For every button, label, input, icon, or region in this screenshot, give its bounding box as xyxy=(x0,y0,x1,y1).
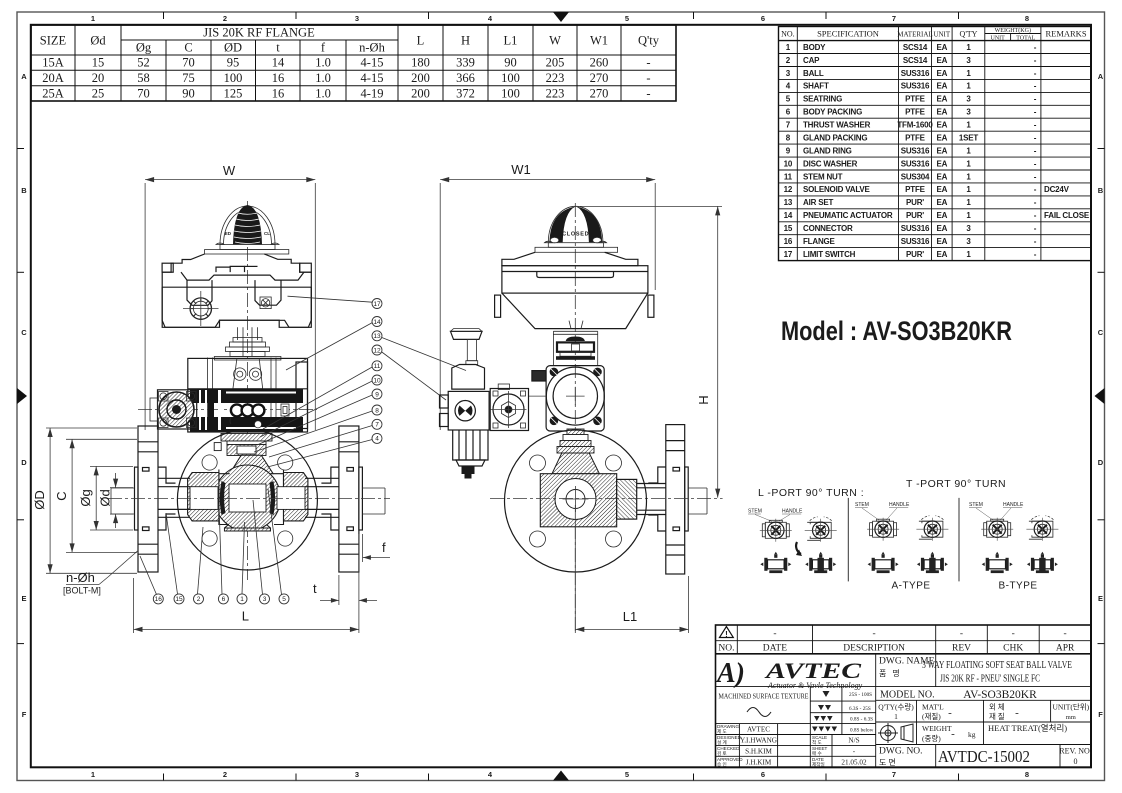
svg-text:SUS316: SUS316 xyxy=(901,146,930,155)
svg-text:MODEL NO.: MODEL NO. xyxy=(880,690,935,701)
svg-text:6.3S - 25S: 6.3S - 25S xyxy=(849,706,871,712)
svg-text:BALL: BALL xyxy=(803,69,824,78)
svg-text:EA: EA xyxy=(936,121,947,130)
svg-text:SOLENOID VALVE: SOLENOID VALVE xyxy=(803,185,871,194)
svg-text:MATERIAL: MATERIAL xyxy=(897,31,932,39)
svg-text:SHAFT: SHAFT xyxy=(803,82,829,91)
svg-text:THRUST WASHER: THRUST WASHER xyxy=(803,121,871,130)
svg-text:t: t xyxy=(276,41,280,55)
svg-text:-: - xyxy=(1034,237,1037,246)
svg-text:AVTDC-15002: AVTDC-15002 xyxy=(938,747,1030,766)
svg-text:외 체: 외 체 xyxy=(989,702,1005,712)
svg-text:PTFE: PTFE xyxy=(905,134,926,143)
svg-text:JIS 20K RF - PNEU' SINGLE FC: JIS 20K RF - PNEU' SINGLE FC xyxy=(940,673,1040,685)
svg-text:5: 5 xyxy=(786,95,791,104)
svg-text:52: 52 xyxy=(137,56,150,70)
svg-text:1: 1 xyxy=(966,82,971,91)
svg-text:n-Øh: n-Øh xyxy=(66,570,95,585)
svg-text:EA: EA xyxy=(936,69,947,78)
svg-text:PTFE: PTFE xyxy=(905,108,926,117)
svg-text:EA: EA xyxy=(936,198,947,207)
svg-text:200: 200 xyxy=(411,86,430,100)
svg-text:25A: 25A xyxy=(42,86,64,100)
svg-text:5: 5 xyxy=(282,596,286,603)
svg-text:설 계: 설 계 xyxy=(717,739,727,746)
svg-text:E: E xyxy=(1098,594,1103,603)
svg-text:SEATRING: SEATRING xyxy=(803,95,842,104)
svg-text:품 명: 품 명 xyxy=(879,668,900,678)
svg-text:-: - xyxy=(773,629,776,639)
svg-text:AV-SO3B20KR: AV-SO3B20KR xyxy=(963,689,1037,701)
svg-text:[BOLT-M]: [BOLT-M] xyxy=(63,586,101,596)
svg-text:-: - xyxy=(1034,185,1037,194)
svg-text:5: 5 xyxy=(625,770,629,779)
svg-text:SUS316: SUS316 xyxy=(901,159,930,168)
svg-text:E: E xyxy=(21,594,26,603)
svg-text:3: 3 xyxy=(966,224,971,233)
svg-text:STEM: STEM xyxy=(969,502,983,508)
svg-text:70: 70 xyxy=(182,56,195,70)
svg-text:A): A) xyxy=(715,658,745,689)
svg-text:EA: EA xyxy=(936,237,947,246)
svg-text:0.8S - 6.3S: 0.8S - 6.3S xyxy=(850,717,873,723)
svg-text:n-Øh: n-Øh xyxy=(359,41,385,55)
svg-text:EA: EA xyxy=(936,224,947,233)
svg-text:-: - xyxy=(1034,250,1037,259)
svg-text:-: - xyxy=(948,707,952,719)
svg-text:SUS316: SUS316 xyxy=(901,224,930,233)
svg-text:1: 1 xyxy=(966,185,971,194)
svg-text:90: 90 xyxy=(182,86,195,100)
svg-text:8: 8 xyxy=(375,407,379,414)
svg-text:1: 1 xyxy=(966,159,971,168)
svg-text:L1: L1 xyxy=(504,34,518,48)
svg-text:TFM-1600: TFM-1600 xyxy=(897,121,933,130)
svg-text:REV. NO.: REV. NO. xyxy=(1059,747,1092,756)
svg-text:STEM: STEM xyxy=(855,502,869,508)
svg-text:Q'TY(수량): Q'TY(수량) xyxy=(878,703,914,712)
svg-text:REV: REV xyxy=(952,644,971,654)
svg-text:12: 12 xyxy=(373,347,381,354)
svg-text:3: 3 xyxy=(966,237,971,246)
svg-text:4: 4 xyxy=(375,436,379,443)
svg-text:-: - xyxy=(1034,172,1037,181)
svg-text:EA: EA xyxy=(936,185,947,194)
svg-text:BODY PACKING: BODY PACKING xyxy=(803,108,862,117)
svg-text:6: 6 xyxy=(222,596,226,603)
svg-text:223: 223 xyxy=(546,86,565,100)
svg-text:2: 2 xyxy=(223,14,227,23)
svg-text:Ød: Ød xyxy=(90,34,106,48)
svg-text:260: 260 xyxy=(590,56,609,70)
svg-text:J.H.KIM: J.H.KIM xyxy=(746,759,772,767)
svg-text:4: 4 xyxy=(488,14,493,23)
svg-text:HEAT TREAT(열처리): HEAT TREAT(열처리) xyxy=(988,723,1067,733)
svg-text:Ød: Ød xyxy=(98,489,113,506)
svg-text:FLANGE: FLANGE xyxy=(803,237,836,246)
svg-text:HANDLE: HANDLE xyxy=(889,502,910,508)
svg-text:(재질): (재질) xyxy=(922,712,941,721)
svg-text:100: 100 xyxy=(224,71,243,85)
svg-text:W1: W1 xyxy=(511,162,531,177)
svg-text:재 질: 재 질 xyxy=(989,712,1005,721)
svg-text:EA: EA xyxy=(936,146,947,155)
svg-text:10: 10 xyxy=(373,377,381,384)
svg-text:3 WAY FLOATING SOFT SEAT BALL: 3 WAY FLOATING SOFT SEAT BALL VALVE xyxy=(922,659,1072,671)
svg-text:15: 15 xyxy=(92,56,105,70)
svg-text:Actuator & Vavle Technology: Actuator & Vavle Technology xyxy=(767,681,863,690)
svg-text:CONNECTOR: CONNECTOR xyxy=(803,224,853,233)
svg-text:15: 15 xyxy=(175,596,183,603)
svg-text:25: 25 xyxy=(92,86,105,100)
svg-text:6: 6 xyxy=(761,14,765,23)
svg-text:EA: EA xyxy=(936,108,947,117)
svg-text:PUR': PUR' xyxy=(906,211,924,220)
svg-text:1.0: 1.0 xyxy=(315,56,331,70)
svg-text:9: 9 xyxy=(786,146,791,155)
svg-text:FAIL CLOSE: FAIL CLOSE xyxy=(1044,211,1090,220)
svg-text:200: 200 xyxy=(411,71,430,85)
svg-text:6: 6 xyxy=(761,770,765,779)
svg-text:Q'ty: Q'ty xyxy=(638,34,660,48)
svg-text:SUS304: SUS304 xyxy=(901,172,930,181)
svg-text:20: 20 xyxy=(92,71,105,85)
svg-text:1: 1 xyxy=(966,146,971,155)
svg-text:3: 3 xyxy=(355,14,359,23)
svg-text:CLOSED: CLOSED xyxy=(562,232,589,238)
svg-text:0.8S below: 0.8S below xyxy=(850,728,874,734)
svg-text:DWG. NO.: DWG. NO. xyxy=(879,747,923,757)
svg-text:제작일: 제작일 xyxy=(812,761,825,768)
svg-text:W1: W1 xyxy=(590,34,608,48)
svg-text:검 토: 검 토 xyxy=(717,750,727,756)
svg-text:-: - xyxy=(1015,707,1019,719)
svg-text:AVTEC: AVTEC xyxy=(747,726,770,734)
svg-text:339: 339 xyxy=(456,56,475,70)
svg-text:20A: 20A xyxy=(42,71,64,85)
svg-text:CAP: CAP xyxy=(803,56,820,65)
svg-text:12: 12 xyxy=(784,185,793,194)
svg-text:W: W xyxy=(549,34,561,48)
svg-text:4: 4 xyxy=(488,770,493,779)
svg-text:-: - xyxy=(1034,43,1037,52)
svg-text:EA: EA xyxy=(936,172,947,181)
svg-text:58: 58 xyxy=(137,71,150,85)
svg-text:3: 3 xyxy=(786,69,791,78)
svg-text:D: D xyxy=(21,458,27,467)
svg-text:EA: EA xyxy=(936,211,947,220)
svg-text:205: 205 xyxy=(546,56,565,70)
svg-text:GLAND RING: GLAND RING xyxy=(803,146,852,155)
svg-text:-: - xyxy=(1034,159,1037,168)
svg-text:100: 100 xyxy=(501,86,520,100)
svg-text:1: 1 xyxy=(966,250,971,259)
svg-text:-: - xyxy=(1034,198,1037,207)
svg-text:REMARKS: REMARKS xyxy=(1045,29,1086,39)
svg-text:125: 125 xyxy=(224,86,243,100)
svg-text:-: - xyxy=(1034,146,1037,155)
svg-text:B: B xyxy=(1098,186,1104,195)
svg-text:F: F xyxy=(22,710,27,719)
svg-text:PTFE: PTFE xyxy=(905,95,926,104)
svg-text:-: - xyxy=(1034,82,1037,91)
svg-text:C: C xyxy=(184,41,192,55)
svg-text:HANDLE: HANDLE xyxy=(1003,502,1024,508)
svg-text:11: 11 xyxy=(784,172,793,181)
svg-text:EA: EA xyxy=(936,43,947,52)
svg-text:Øg: Øg xyxy=(136,41,152,55)
svg-text:-: - xyxy=(1034,211,1037,220)
svg-text:EA: EA xyxy=(936,250,947,259)
svg-text:NO.: NO. xyxy=(781,30,795,39)
svg-text:-: - xyxy=(1012,629,1015,639)
svg-text:2: 2 xyxy=(223,770,227,779)
svg-text:UNIT: UNIT xyxy=(933,31,950,39)
svg-text:WEIGHT: WEIGHT xyxy=(922,724,952,733)
svg-text:MACHINED SURFACE TEXTURE: MACHINED SURFACE TEXTURE xyxy=(719,693,809,701)
svg-text:1: 1 xyxy=(91,770,95,779)
svg-text:EA: EA xyxy=(936,56,947,65)
svg-text:25S - 100S: 25S - 100S xyxy=(849,692,872,698)
svg-text:AVTEC: AVTEC xyxy=(763,658,861,683)
svg-text:ED: ED xyxy=(225,231,232,236)
svg-text:f: f xyxy=(321,41,326,55)
svg-text:2: 2 xyxy=(786,56,791,65)
svg-text:1SET: 1SET xyxy=(959,134,979,143)
svg-text:SCS14: SCS14 xyxy=(903,56,928,65)
svg-text:SCS14: SCS14 xyxy=(903,43,928,52)
svg-text:223: 223 xyxy=(546,71,565,85)
svg-text:UNIT: UNIT xyxy=(991,36,1006,42)
svg-text:B: B xyxy=(21,186,27,195)
svg-text:9: 9 xyxy=(375,391,379,398)
svg-text:7: 7 xyxy=(786,121,791,130)
svg-text:L: L xyxy=(242,608,249,623)
svg-text:제 도: 제 도 xyxy=(717,728,727,735)
svg-text:-: - xyxy=(1064,629,1067,639)
svg-text:1: 1 xyxy=(966,198,971,207)
svg-text:180: 180 xyxy=(411,56,430,70)
svg-text:EA: EA xyxy=(936,159,947,168)
svg-text:C: C xyxy=(1098,328,1104,337)
svg-text:3: 3 xyxy=(966,95,971,104)
svg-text:NO.: NO. xyxy=(718,644,734,654)
svg-text:ØD: ØD xyxy=(224,41,242,55)
svg-text:C: C xyxy=(21,328,27,337)
svg-text:1: 1 xyxy=(240,596,244,603)
svg-text:Øg: Øg xyxy=(78,489,93,506)
svg-text:2: 2 xyxy=(197,596,201,603)
svg-text:8: 8 xyxy=(1025,14,1029,23)
svg-text:7: 7 xyxy=(892,14,896,23)
svg-text:f: f xyxy=(382,540,386,555)
svg-text:AIR SET: AIR SET xyxy=(803,198,833,207)
svg-text:-: - xyxy=(853,748,856,756)
svg-text:-: - xyxy=(1034,69,1037,78)
svg-text:STEM: STEM xyxy=(748,509,762,515)
svg-text:1: 1 xyxy=(966,211,971,220)
svg-text:mm: mm xyxy=(1066,714,1076,721)
svg-text:F: F xyxy=(1098,710,1103,719)
svg-text:S.H.KIM: S.H.KIM xyxy=(745,748,772,756)
svg-text:14: 14 xyxy=(373,319,381,326)
svg-text:PNEUMATIC ACTUATOR: PNEUMATIC ACTUATOR xyxy=(803,211,893,220)
svg-text:W: W xyxy=(223,163,236,178)
svg-text:17: 17 xyxy=(373,301,381,308)
svg-text:-: - xyxy=(646,56,650,70)
svg-text:21.05.02: 21.05.02 xyxy=(841,759,867,767)
svg-text:WEIGHT(KG): WEIGHT(KG) xyxy=(995,27,1031,34)
svg-text:1: 1 xyxy=(966,69,971,78)
svg-text:C: C xyxy=(54,491,69,500)
svg-text:10: 10 xyxy=(784,159,793,168)
svg-text:A: A xyxy=(1098,72,1104,81)
svg-text:EA: EA xyxy=(936,82,947,91)
svg-text:kg: kg xyxy=(968,730,976,739)
svg-text:L1: L1 xyxy=(623,609,637,624)
svg-text:A-TYPE: A-TYPE xyxy=(891,581,930,592)
svg-text:B-TYPE: B-TYPE xyxy=(998,581,1037,592)
svg-text:15: 15 xyxy=(784,224,793,233)
svg-text:APR: APR xyxy=(1056,644,1075,654)
svg-text:0: 0 xyxy=(1074,757,1078,766)
svg-text:SUS316: SUS316 xyxy=(901,69,930,78)
svg-text:3: 3 xyxy=(966,108,971,117)
svg-text:STEM NUT: STEM NUT xyxy=(803,172,843,181)
svg-text:3: 3 xyxy=(263,596,267,603)
svg-text:-: - xyxy=(873,629,876,639)
svg-text:4: 4 xyxy=(786,82,791,91)
svg-text:SPECIFICATION: SPECIFICATION xyxy=(817,29,879,39)
svg-text:PUR': PUR' xyxy=(906,250,924,259)
svg-text:SUS316: SUS316 xyxy=(901,82,930,91)
svg-text:L: L xyxy=(417,34,425,48)
svg-text:1: 1 xyxy=(966,121,971,130)
svg-text:372: 372 xyxy=(456,86,475,100)
svg-text:N/S: N/S xyxy=(848,737,859,745)
svg-text:DATE: DATE xyxy=(763,644,787,654)
svg-text:t: t xyxy=(313,581,317,596)
svg-text:-: - xyxy=(1034,121,1037,130)
svg-text:95: 95 xyxy=(227,56,240,70)
svg-text:15A: 15A xyxy=(42,56,64,70)
svg-text:MAT'L: MAT'L xyxy=(922,703,944,712)
svg-text:16: 16 xyxy=(784,237,793,246)
svg-text:H: H xyxy=(461,34,470,48)
svg-text:16: 16 xyxy=(272,86,285,100)
svg-text:16: 16 xyxy=(272,71,285,85)
svg-text:5: 5 xyxy=(625,14,629,23)
svg-text:1: 1 xyxy=(786,43,791,52)
svg-text:SIZE: SIZE xyxy=(40,34,67,48)
svg-text:70: 70 xyxy=(137,86,150,100)
svg-text:75: 75 xyxy=(182,71,195,85)
svg-text:16: 16 xyxy=(155,596,163,603)
svg-text:T -PORT 90° TURN: T -PORT 90° TURN xyxy=(906,478,1006,490)
svg-text:14: 14 xyxy=(784,211,793,220)
svg-text:Q'TY: Q'TY xyxy=(960,30,978,39)
svg-text:8: 8 xyxy=(786,134,791,143)
svg-text:4-19: 4-19 xyxy=(361,86,384,100)
svg-text:7: 7 xyxy=(375,422,379,429)
svg-text:매 수: 매 수 xyxy=(812,750,822,757)
svg-text:!: ! xyxy=(725,630,728,639)
svg-text:8: 8 xyxy=(1025,770,1029,779)
svg-text:13: 13 xyxy=(784,198,793,207)
svg-text:CL: CL xyxy=(264,231,270,236)
svg-text:DC24V: DC24V xyxy=(1044,185,1070,194)
svg-text:EA: EA xyxy=(936,134,947,143)
svg-text:HANDLE: HANDLE xyxy=(782,509,803,515)
svg-text:270: 270 xyxy=(590,71,609,85)
svg-text:(중량): (중량) xyxy=(922,734,941,743)
svg-text:H: H xyxy=(696,395,711,404)
svg-text:D: D xyxy=(1098,458,1104,467)
svg-text:A: A xyxy=(21,72,27,81)
svg-text:DESCRIPTION: DESCRIPTION xyxy=(843,644,905,654)
svg-text:7: 7 xyxy=(892,770,896,779)
svg-text:13: 13 xyxy=(373,333,381,340)
svg-text:TOTAL: TOTAL xyxy=(1016,36,1035,42)
svg-text:17: 17 xyxy=(784,250,793,259)
svg-text:-: - xyxy=(1034,108,1037,117)
svg-text:14: 14 xyxy=(272,56,285,70)
svg-text:CHK: CHK xyxy=(1003,644,1023,654)
svg-text:-: - xyxy=(1034,224,1037,233)
svg-text:-: - xyxy=(1034,95,1037,104)
svg-text:SUS316: SUS316 xyxy=(901,237,930,246)
svg-text:11: 11 xyxy=(374,363,381,370)
svg-text:L -PORT 90° TURN :: L -PORT 90° TURN : xyxy=(758,487,864,499)
svg-text:-: - xyxy=(1034,134,1037,143)
svg-text:Y.I.HWANG: Y.I.HWANG xyxy=(740,737,777,745)
svg-text:90: 90 xyxy=(504,56,517,70)
svg-text:6: 6 xyxy=(786,108,791,117)
svg-text:EA: EA xyxy=(936,95,947,104)
svg-text:1: 1 xyxy=(894,712,898,721)
svg-text:PTFE: PTFE xyxy=(905,185,926,194)
svg-text:270: 270 xyxy=(590,86,609,100)
svg-text:-: - xyxy=(646,86,650,100)
svg-text:척 도: 척 도 xyxy=(812,739,822,746)
svg-text:1: 1 xyxy=(966,43,971,52)
svg-text:UNIT(단위): UNIT(단위) xyxy=(1052,702,1089,712)
svg-text:도 면: 도 면 xyxy=(879,757,896,767)
svg-text:1: 1 xyxy=(966,172,971,181)
svg-text:-: - xyxy=(1034,56,1037,65)
svg-text:PUR': PUR' xyxy=(906,198,924,207)
svg-text:JIS 20K RF FLANGE: JIS 20K RF FLANGE xyxy=(203,26,315,40)
svg-text:Model : AV-SO3B20KR: Model : AV-SO3B20KR xyxy=(781,316,1012,346)
svg-text:3: 3 xyxy=(966,56,971,65)
svg-text:BODY: BODY xyxy=(803,43,826,52)
svg-text:4-15: 4-15 xyxy=(361,56,384,70)
svg-text:-: - xyxy=(960,629,963,639)
svg-text:366: 366 xyxy=(456,71,475,85)
svg-text:4-15: 4-15 xyxy=(361,71,384,85)
svg-text:3: 3 xyxy=(355,770,359,779)
svg-text:GLAND PACKING: GLAND PACKING xyxy=(803,134,867,143)
svg-text:승 인: 승 인 xyxy=(717,761,727,767)
svg-text:1.0: 1.0 xyxy=(315,86,331,100)
svg-text:-: - xyxy=(951,728,955,740)
svg-text:DISC WASHER: DISC WASHER xyxy=(803,159,858,168)
svg-text:1.0: 1.0 xyxy=(315,71,331,85)
svg-text:1: 1 xyxy=(91,14,95,23)
svg-text:LIMIT SWITCH: LIMIT SWITCH xyxy=(803,250,856,259)
svg-text:100: 100 xyxy=(501,71,520,85)
svg-text:-: - xyxy=(646,71,650,85)
